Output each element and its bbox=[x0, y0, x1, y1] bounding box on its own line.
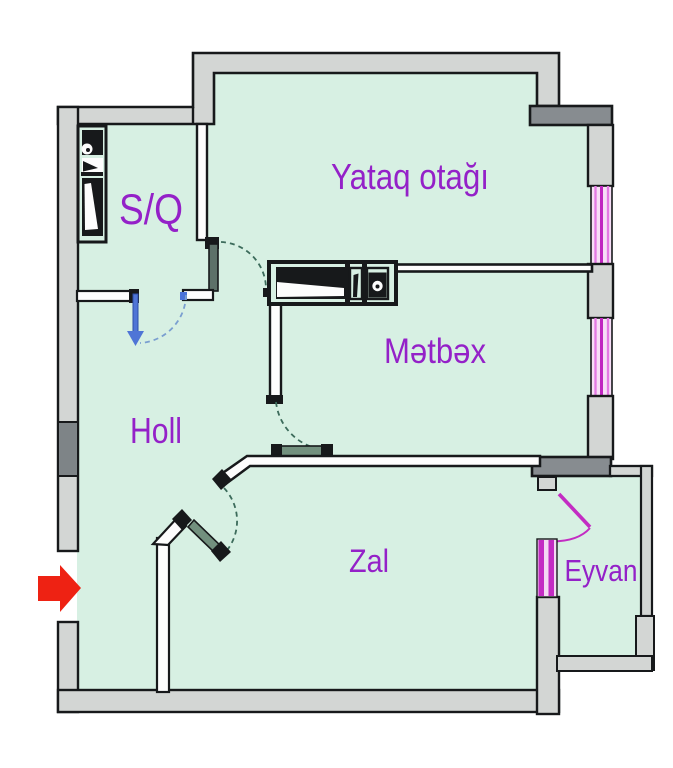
svg-text:Yataq otağı: Yataq otağı bbox=[331, 156, 489, 197]
svg-text:Holl: Holl bbox=[130, 410, 182, 451]
svg-text:Eyvan: Eyvan bbox=[565, 553, 638, 588]
svg-text:Zal: Zal bbox=[349, 543, 389, 579]
svg-text:Mətbəx: Mətbəx bbox=[384, 332, 486, 371]
svg-text:S/Q: S/Q bbox=[119, 186, 183, 234]
